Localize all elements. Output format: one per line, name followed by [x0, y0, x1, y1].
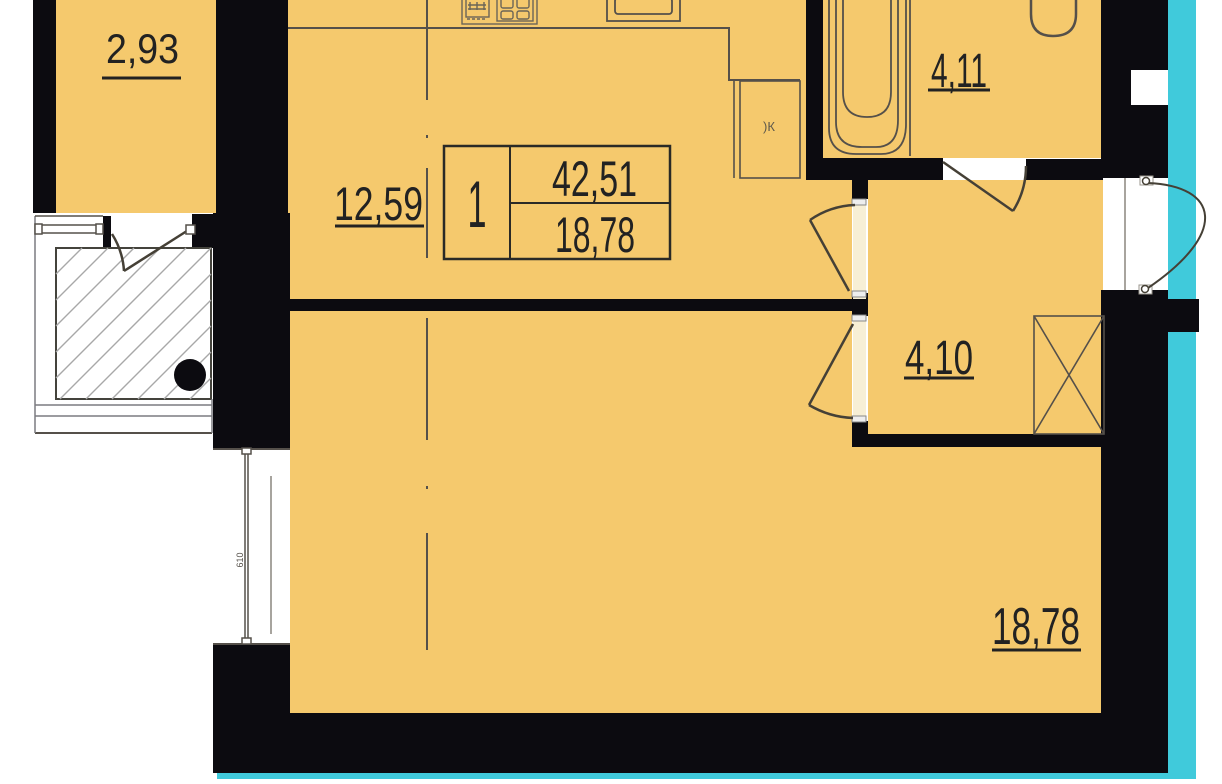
svg-text:18,78: 18,78 — [992, 598, 1080, 656]
svg-text:)К: )К — [763, 119, 775, 134]
svg-text:610: 610 — [235, 552, 245, 567]
svg-text:1: 1 — [468, 167, 487, 241]
svg-text:42,51: 42,51 — [552, 151, 637, 207]
svg-text:2,93: 2,93 — [106, 25, 179, 72]
svg-text:18,78: 18,78 — [555, 207, 635, 263]
svg-text:12,59: 12,59 — [334, 177, 423, 230]
